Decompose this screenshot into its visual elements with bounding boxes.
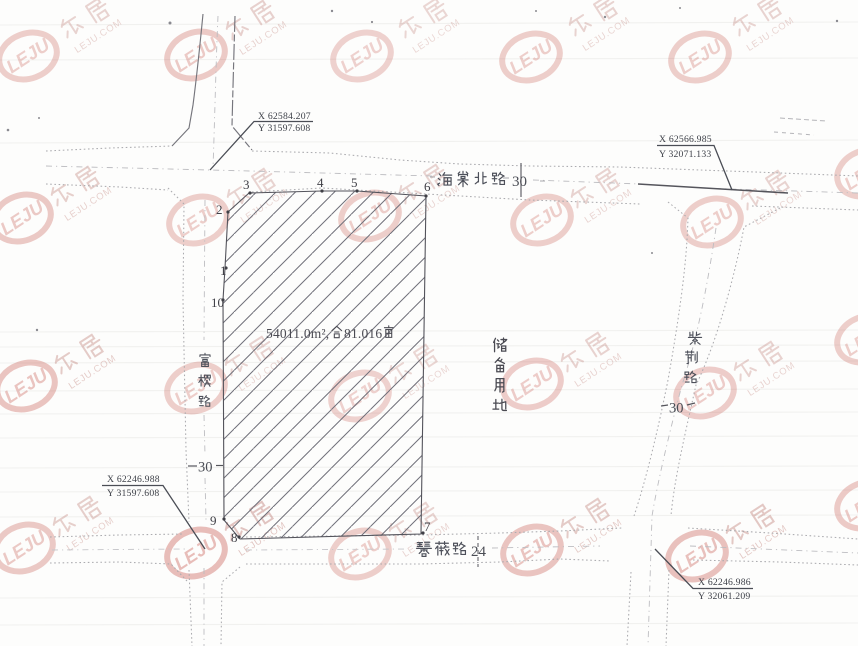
svg-text:54011.0m²,: 54011.0m², [266,326,329,341]
svg-text:5: 5 [351,175,358,190]
svg-text:6: 6 [424,179,431,194]
svg-text:30: 30 [512,174,527,190]
svg-text:1: 1 [220,263,227,278]
svg-text:10: 10 [211,295,224,310]
svg-text:9: 9 [210,513,217,528]
svg-text:Y 31597.608: Y 31597.608 [258,123,310,134]
svg-text:Y 31597.608: Y 31597.608 [107,488,159,499]
svg-text:X 62246.988: X 62246.988 [107,474,160,485]
svg-text:Y 32071.133: Y 32071.133 [659,149,711,160]
svg-text:X 62246.986: X 62246.986 [698,577,751,588]
svg-text:30: 30 [669,401,684,417]
svg-text:X 62584.207: X 62584.207 [258,111,311,122]
svg-text:2: 2 [216,202,223,217]
svg-text:4: 4 [317,175,324,190]
svg-text:30: 30 [198,460,213,476]
svg-text:Y 32061.209: Y 32061.209 [698,591,750,602]
svg-text:3: 3 [243,177,250,192]
svg-text:X 62566.985: X 62566.985 [659,134,712,145]
svg-text:8: 8 [231,530,238,545]
svg-text:7: 7 [424,519,431,534]
svg-text:81.016: 81.016 [344,326,382,341]
svg-text:24: 24 [471,544,487,560]
